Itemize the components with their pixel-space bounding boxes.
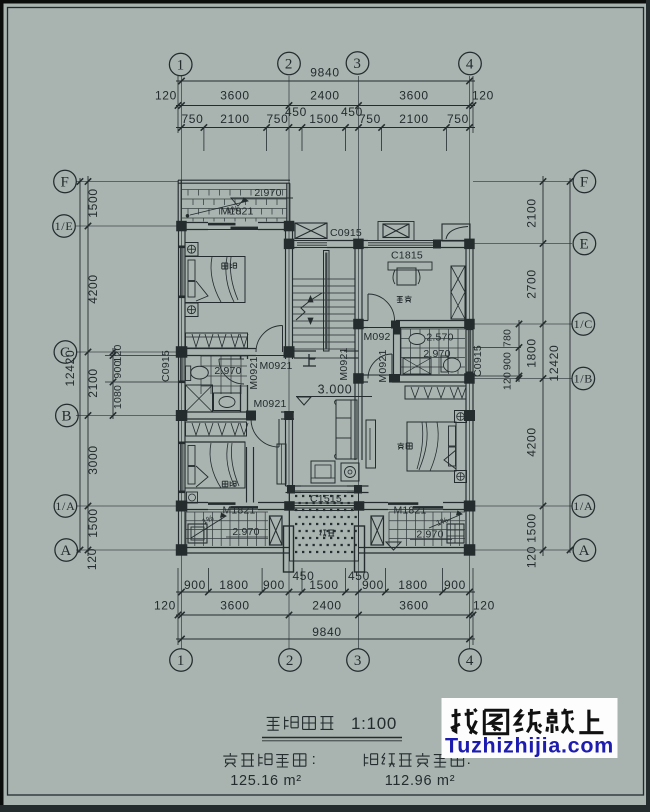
svg-text:120: 120 [525,546,539,568]
svg-text:900: 900 [112,360,124,378]
svg-text:3600: 3600 [399,599,429,613]
svg-text:C0915: C0915 [160,350,172,382]
svg-text:780: 780 [502,329,514,347]
svg-text:1800: 1800 [219,578,249,592]
svg-text:M0921: M0921 [338,347,350,380]
svg-text:2100: 2100 [86,368,100,398]
svg-text:1500: 1500 [86,188,100,218]
svg-text:M092: M092 [363,331,390,343]
svg-text:M0921: M0921 [248,356,260,389]
svg-text:3600: 3600 [399,89,429,103]
svg-text:2: 2 [286,653,294,669]
svg-text:2700: 2700 [525,269,539,299]
svg-text:120: 120 [155,89,177,103]
svg-text:F: F [60,175,69,191]
svg-text:M0921: M0921 [253,398,286,410]
svg-text:4: 4 [466,653,474,669]
svg-text:9840: 9840 [312,625,342,639]
svg-text:M0921: M0921 [377,349,389,382]
svg-text:C1515: C1515 [310,493,342,505]
svg-text:1500: 1500 [86,508,100,538]
svg-text:2100: 2100 [220,112,250,126]
svg-text:C: C [60,345,71,361]
svg-text:3: 3 [353,56,361,72]
svg-text:120: 120 [502,372,514,390]
svg-text:C0915: C0915 [472,345,484,377]
svg-text:120: 120 [472,89,494,103]
svg-text:E: E [579,237,589,253]
svg-text:4200: 4200 [86,274,100,304]
svg-text:2100: 2100 [399,112,429,126]
svg-text:900: 900 [444,578,466,592]
svg-text:1/B: 1/B [574,372,593,386]
svg-text:450: 450 [341,105,363,119]
svg-text:2.970: 2.970 [214,365,241,377]
svg-text:900: 900 [184,578,206,592]
svg-text:1/E: 1/E [55,219,74,233]
svg-text:120: 120 [473,599,495,613]
svg-text:M0921: M0921 [259,360,292,372]
svg-text:1: 1 [177,58,185,74]
svg-text:2400: 2400 [310,89,340,103]
svg-text::: : [312,751,317,768]
svg-text:112.96 m²: 112.96 m² [385,773,456,789]
svg-text:M1821: M1821 [393,505,426,517]
svg-text:750: 750 [181,112,203,126]
svg-text:1/C: 1/C [574,317,593,331]
svg-text:M1821: M1821 [222,505,255,517]
svg-text:2.970: 2.970 [416,529,443,541]
svg-text:F: F [580,175,589,191]
svg-text:1/A: 1/A [573,499,593,513]
svg-text:3000: 3000 [86,445,100,475]
svg-text:4: 4 [466,57,474,73]
svg-text:3600: 3600 [220,89,250,103]
svg-text:C0915: C0915 [330,227,362,239]
svg-text:120: 120 [154,599,176,613]
svg-text:4200: 4200 [525,427,539,457]
svg-text:1080: 1080 [112,385,124,409]
svg-text:9840: 9840 [310,66,340,80]
svg-text:1/A: 1/A [55,499,75,513]
svg-text:Tuzhizhijia.com: Tuzhizhijia.com [445,734,614,758]
svg-text:1:100: 1:100 [351,714,397,733]
svg-text:3600: 3600 [220,599,250,613]
svg-text:450: 450 [348,569,370,583]
svg-text:120: 120 [85,548,99,570]
svg-text:2.970: 2.970 [232,526,259,538]
svg-text:2.970: 2.970 [254,187,281,199]
svg-text:450: 450 [285,105,307,119]
svg-text:A: A [60,543,72,559]
svg-text:125.16 m²: 125.16 m² [230,773,302,789]
svg-text:1500: 1500 [309,112,339,126]
svg-text:1500: 1500 [525,513,539,543]
svg-text:2: 2 [285,57,293,73]
svg-text:12420: 12420 [547,345,561,382]
svg-text:2.970: 2.970 [423,348,450,360]
svg-text:1: 1 [177,653,185,669]
svg-text:900: 900 [263,578,285,592]
svg-text:2.570: 2.570 [426,332,453,344]
svg-text:1800: 1800 [398,578,428,592]
svg-text:120: 120 [112,344,124,362]
svg-text:3: 3 [354,653,362,669]
svg-text:A: A [579,543,591,559]
svg-text:3.000: 3.000 [318,383,353,397]
svg-text:2100: 2100 [525,198,539,228]
svg-text:C1815: C1815 [391,250,423,262]
svg-text:900: 900 [502,352,514,370]
svg-text:450: 450 [292,569,314,583]
svg-text:1800: 1800 [525,338,539,368]
svg-text:2400: 2400 [312,599,342,613]
svg-text:B: B [62,409,73,425]
svg-text:750: 750 [447,112,469,126]
